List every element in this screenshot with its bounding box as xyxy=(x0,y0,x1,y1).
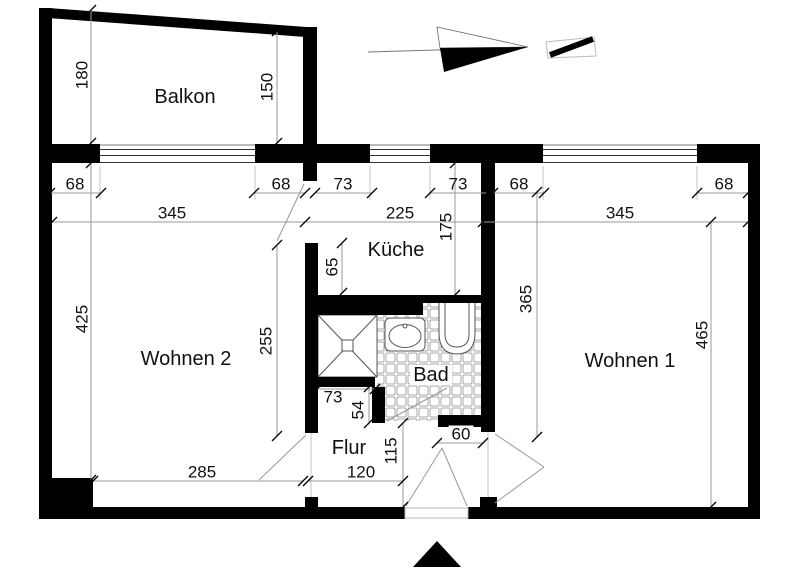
dim-k-wall-nib: 65 xyxy=(324,258,341,277)
dim-w1-pier-right: 68 xyxy=(715,176,734,193)
room-label-balkon: Balkon xyxy=(154,87,215,107)
dim-w2-height: 425 xyxy=(74,305,91,333)
washbasin-icon xyxy=(385,318,425,351)
room-label-flur: Flur xyxy=(332,438,366,458)
dim-bad-door: 60 xyxy=(449,426,474,443)
dim-flur-depth: 115 xyxy=(383,437,400,464)
dim-w2-pier-left: 68 xyxy=(66,176,85,193)
dim-w2-inner-height: 255 xyxy=(258,327,275,355)
floor-plan: Balkon Wohnen 2 Wohnen 1 Küche Bad Flur … xyxy=(0,0,800,571)
dim-w1-window: 345 xyxy=(606,205,634,222)
entrance-door-swing xyxy=(406,448,467,506)
dim-balkon-left: 180 xyxy=(74,61,91,89)
windows xyxy=(100,145,697,163)
room-label-bad: Bad xyxy=(410,365,452,385)
dim-w1-height-right: 465 xyxy=(694,321,711,349)
dim-w2-window: 345 xyxy=(158,205,186,222)
dim-k-window: 225 xyxy=(386,205,414,222)
dim-w1-height-left: 365 xyxy=(518,285,535,313)
floor-plan-drawing xyxy=(0,0,800,571)
shower-tray-icon xyxy=(318,315,377,377)
room-label-wohnen1: Wohnen 1 xyxy=(585,351,676,371)
dim-k-depth: 175 xyxy=(438,213,455,241)
dim-shower-wall: 73 xyxy=(324,389,343,406)
room-label-wohnen2: Wohnen 2 xyxy=(141,349,232,369)
wohnen2-door-swing xyxy=(259,435,306,480)
entrance-marker-icon xyxy=(413,541,461,567)
dim-w1-pier-left: 68 xyxy=(510,176,529,193)
wohnen1-door-swing xyxy=(495,434,544,503)
dim-balkon-right: 150 xyxy=(259,73,276,101)
dim-w2-bottom: 285 xyxy=(188,464,216,481)
scale-mark-icon xyxy=(546,37,596,58)
dim-k-pier-right: 73 xyxy=(449,176,468,193)
dim-w2-pier-right: 68 xyxy=(272,176,291,193)
room-label-kueche: Küche xyxy=(368,240,425,260)
north-arrow-icon xyxy=(368,27,528,72)
dim-bad-wall-nib: 54 xyxy=(350,401,367,420)
entrance-door-opening xyxy=(405,508,468,518)
toilet-icon xyxy=(439,299,475,354)
dim-k-pier-left: 73 xyxy=(334,176,353,193)
dim-flur-entry: 120 xyxy=(347,464,375,481)
